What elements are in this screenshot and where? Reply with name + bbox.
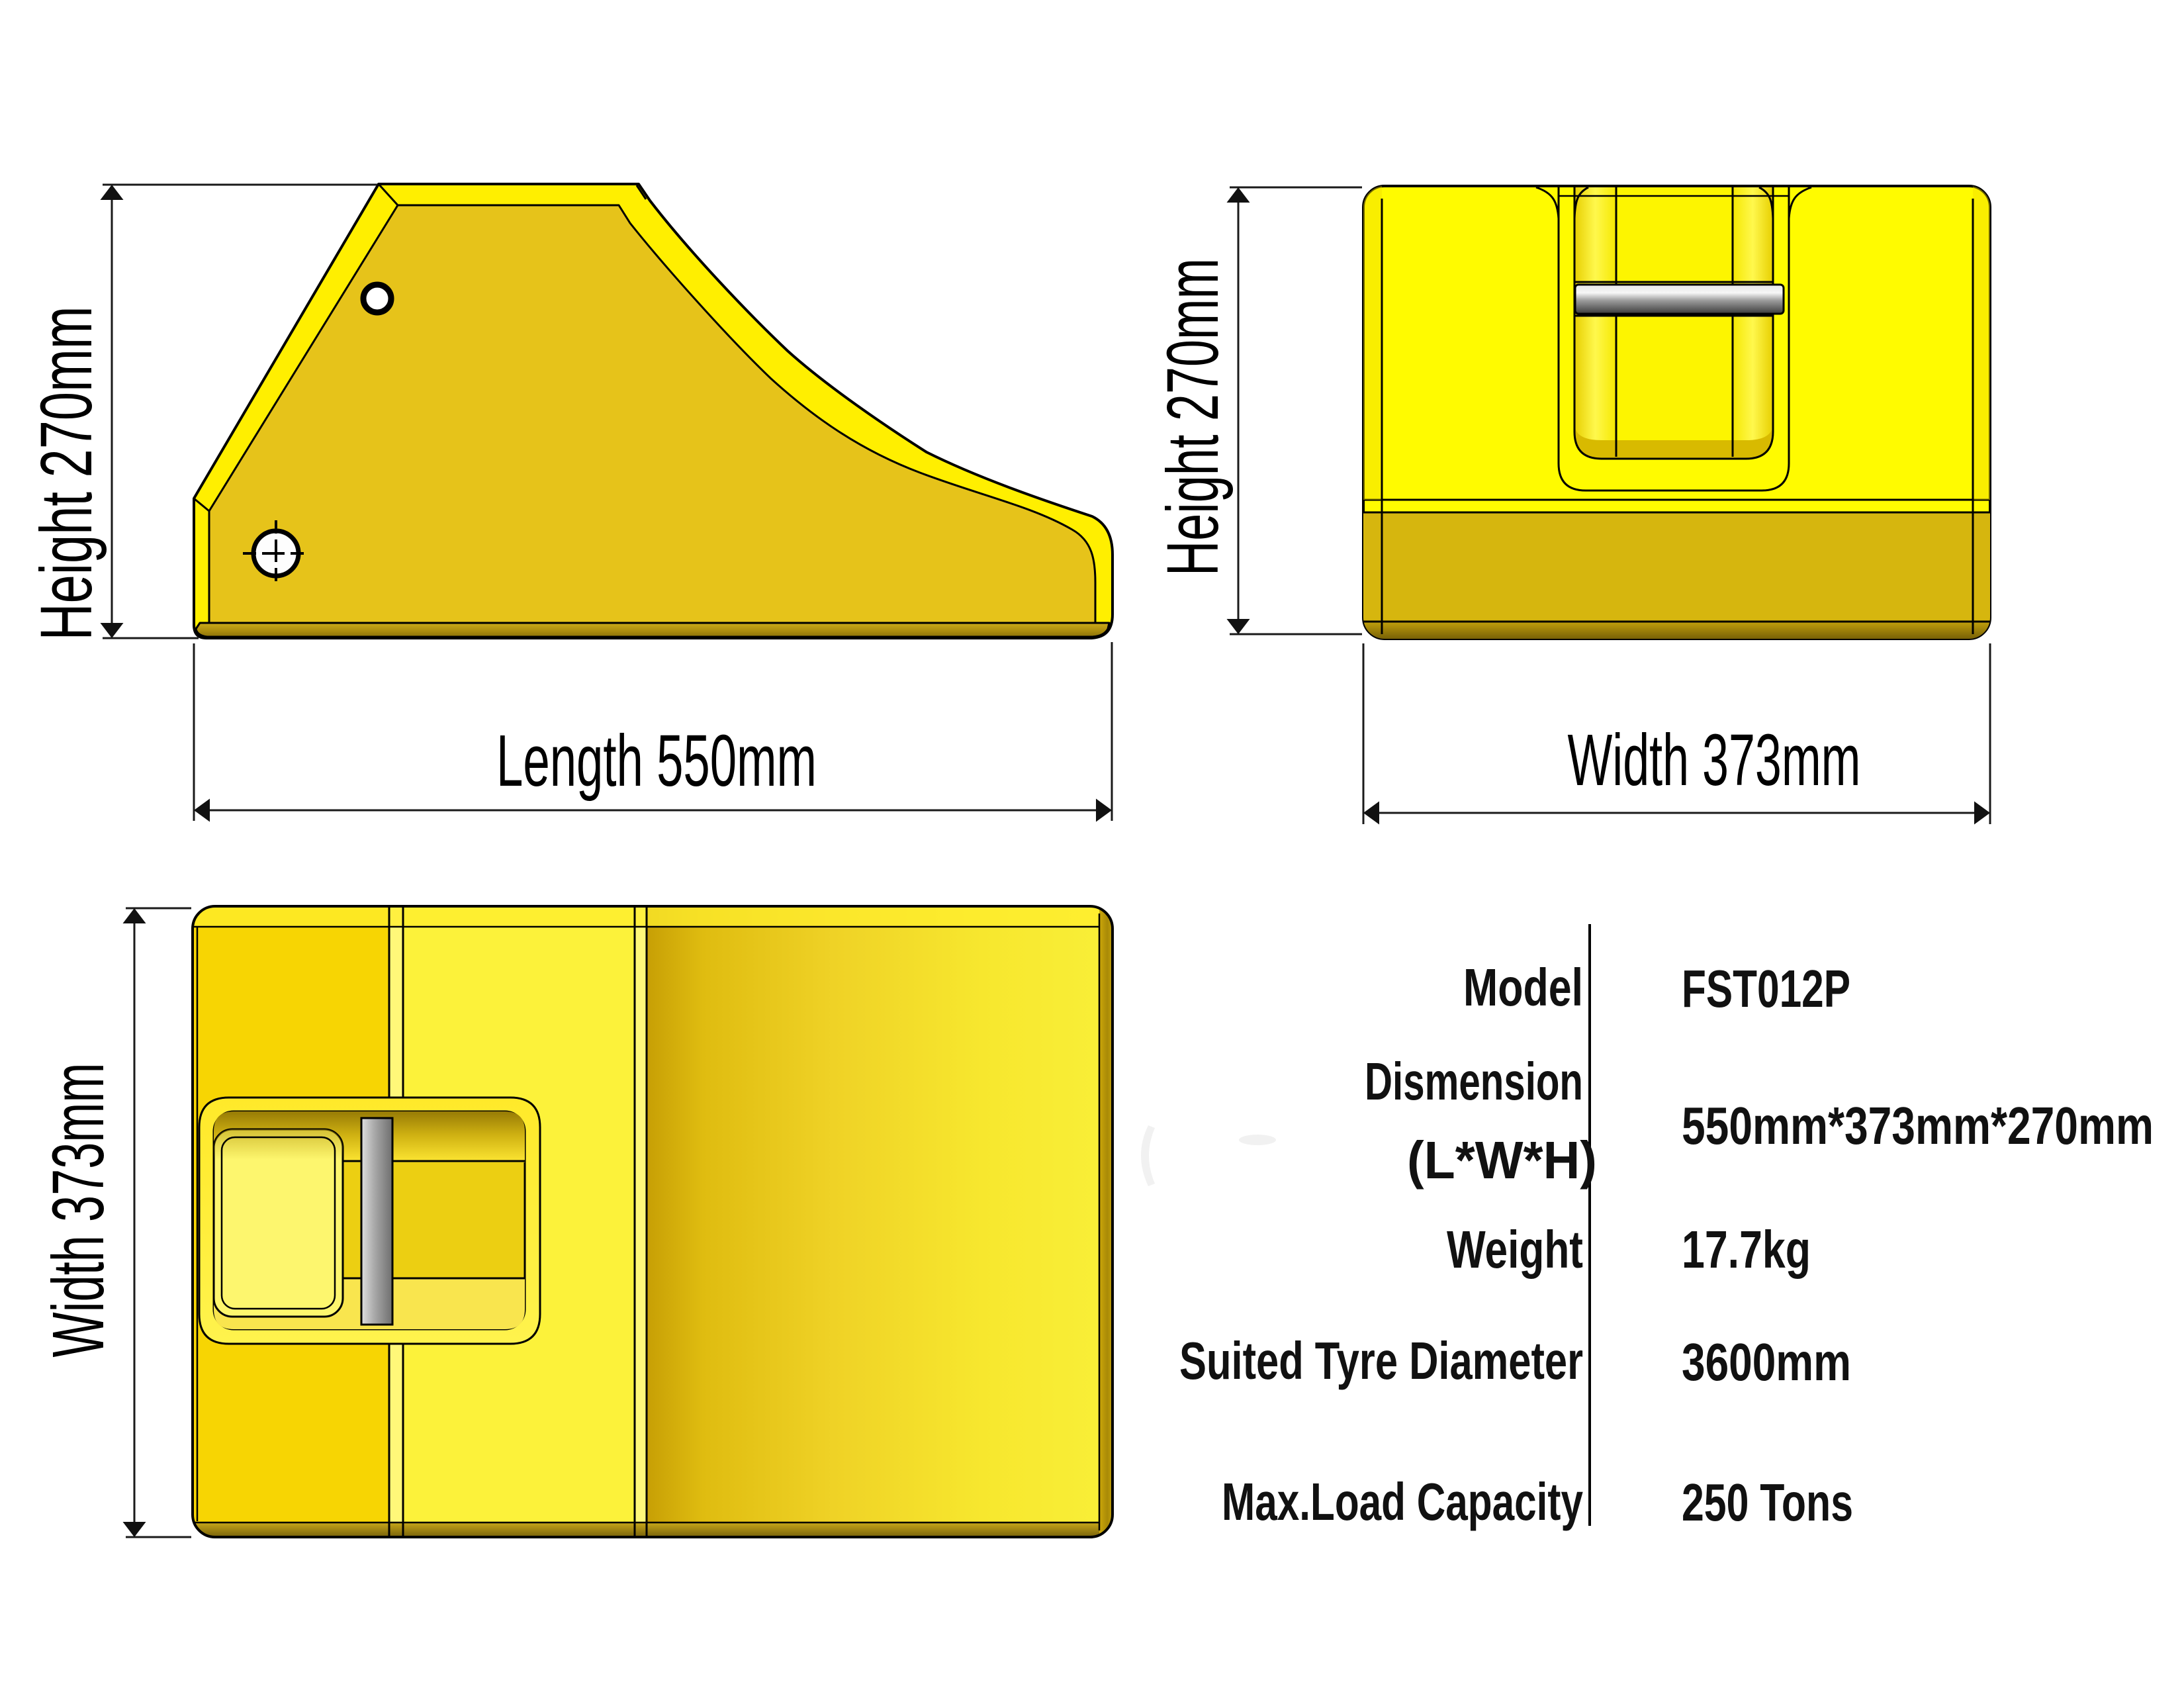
svg-text:Width 373mm: Width 373mm bbox=[38, 1063, 119, 1358]
svg-text:Width 373mm: Width 373mm bbox=[1568, 720, 1861, 801]
svg-text:Max.Load Capacity: Max.Load Capacity bbox=[1222, 1472, 1583, 1531]
svg-text:250 Tons: 250 Tons bbox=[1682, 1473, 1853, 1532]
svg-text:17.7kg: 17.7kg bbox=[1682, 1220, 1811, 1279]
svg-text:Weight: Weight bbox=[1447, 1220, 1583, 1279]
svg-text:550mm*373mm*270mm: 550mm*373mm*270mm bbox=[1682, 1096, 2154, 1155]
svg-text:Suited Tyre Diameter: Suited Tyre Diameter bbox=[1179, 1331, 1583, 1390]
svg-text:3600mm: 3600mm bbox=[1682, 1333, 1851, 1391]
svg-text:Height 270mm: Height 270mm bbox=[1152, 258, 1234, 576]
svg-text:Length 550mm: Length 550mm bbox=[496, 720, 817, 802]
svg-text:FST012P: FST012P bbox=[1682, 959, 1850, 1018]
svg-text:Dismension: Dismension bbox=[1365, 1052, 1583, 1111]
svg-text:(L*W*H): (L*W*H) bbox=[1407, 1131, 1597, 1190]
svg-text:Height 270mm: Height 270mm bbox=[26, 306, 107, 640]
svg-text:Model: Model bbox=[1463, 958, 1583, 1017]
